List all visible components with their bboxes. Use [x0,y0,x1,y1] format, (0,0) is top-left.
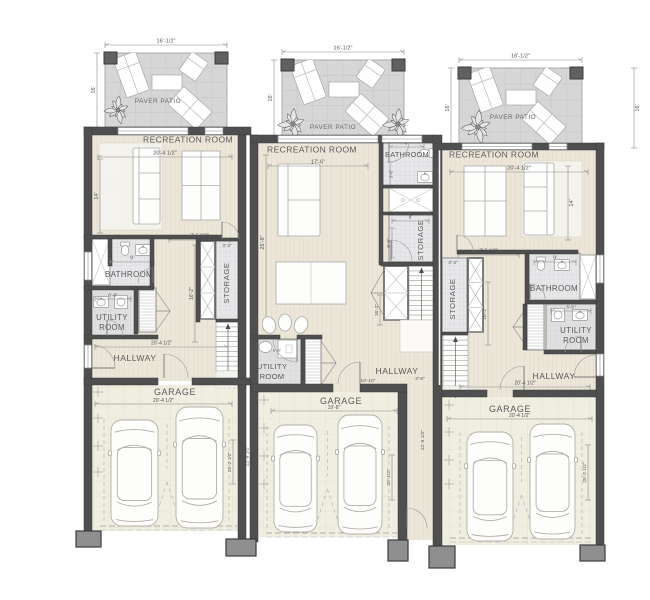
svg-text:20'-4 1/2": 20'-4 1/2" [151,341,172,347]
svg-text:16': 16' [268,94,274,101]
svg-text:25'-2 1/2": 25'-2 1/2" [582,462,588,483]
svg-text:20'-4 1/2": 20'-4 1/2" [153,151,177,157]
svg-text:6'-8": 6'-8" [566,305,576,310]
svg-text:3'-3": 3'-3" [222,243,232,248]
svg-text:9': 9' [553,256,557,262]
svg-text:ROOM: ROOM [260,372,285,381]
svg-text:PAVER PATIO: PAVER PATIO [310,124,356,131]
svg-text:16': 16' [635,104,641,111]
svg-text:GARAGE: GARAGE [154,387,196,397]
svg-text:PAVER PATIO: PAVER PATIO [490,114,536,121]
svg-text:UTILITY: UTILITY [560,326,592,335]
svg-text:10'-10": 10'-10" [361,378,376,384]
svg-text:HALLWAY: HALLWAY [114,353,157,363]
svg-text:STORAGE: STORAGE [448,278,457,319]
svg-text:ROOM: ROOM [99,323,125,332]
svg-text:STORAGE: STORAGE [416,219,425,260]
svg-text:BATHROOM: BATHROOM [530,284,578,293]
svg-text:16': 16' [91,86,97,93]
svg-text:HALLWAY: HALLWAY [533,371,576,381]
svg-text:14': 14' [569,199,575,206]
svg-text:3'-3": 3'-3" [448,260,458,265]
svg-text:6'-8": 6'-8" [386,238,391,248]
svg-text:16'-1/2": 16'-1/2" [511,54,530,60]
svg-text:20'-4 1/2": 20'-4 1/2" [507,166,531,172]
svg-text:6'-8": 6'-8" [108,293,118,299]
svg-text:20'-4 1/2": 20'-4 1/2" [509,413,530,419]
svg-text:16'-1/2": 16'-1/2" [157,39,176,45]
svg-text:16': 16' [445,104,451,111]
svg-text:6'-8": 6'-8" [273,348,282,353]
svg-text:RECREATION ROOM: RECREATION ROOM [143,135,233,145]
svg-text:PAVER PATIO: PAVER PATIO [135,98,181,105]
svg-text:22'-9 1/2": 22'-9 1/2" [420,430,426,451]
svg-text:25'-2 1/2": 25'-2 1/2" [227,452,233,473]
svg-text:20'-4 1/2": 20'-4 1/2" [153,398,174,404]
svg-text:BATHROOM: BATHROOM [105,270,153,279]
svg-text:HALLWAY: HALLWAY [376,366,419,376]
svg-text:3'-6": 3'-6" [389,169,394,178]
svg-text:17'-6": 17'-6" [311,160,325,166]
svg-text:25'-8": 25'-8" [260,235,266,249]
svg-text:16'-1/2": 16'-1/2" [334,46,353,52]
svg-text:19'-8": 19'-8" [328,405,341,411]
svg-text:3'-8": 3'-8" [415,376,425,382]
svg-text:14': 14' [94,192,100,199]
svg-text:GARAGE: GARAGE [320,396,362,406]
svg-text:9': 9' [130,256,134,262]
svg-text:RECREATION ROOM: RECREATION ROOM [449,150,539,160]
svg-text:16'-2": 16'-2" [374,304,380,317]
svg-text:16'-2": 16'-2" [189,287,195,300]
svg-text:20'-4 1/2": 20'-4 1/2" [514,381,535,387]
svg-text:RECREATION ROOM: RECREATION ROOM [267,145,357,155]
svg-text:16'-2": 16'-2" [482,307,488,320]
svg-text:ROOM: ROOM [563,336,589,345]
svg-text:UTILITY: UTILITY [257,362,287,371]
svg-text:STORAGE: STORAGE [222,262,231,303]
